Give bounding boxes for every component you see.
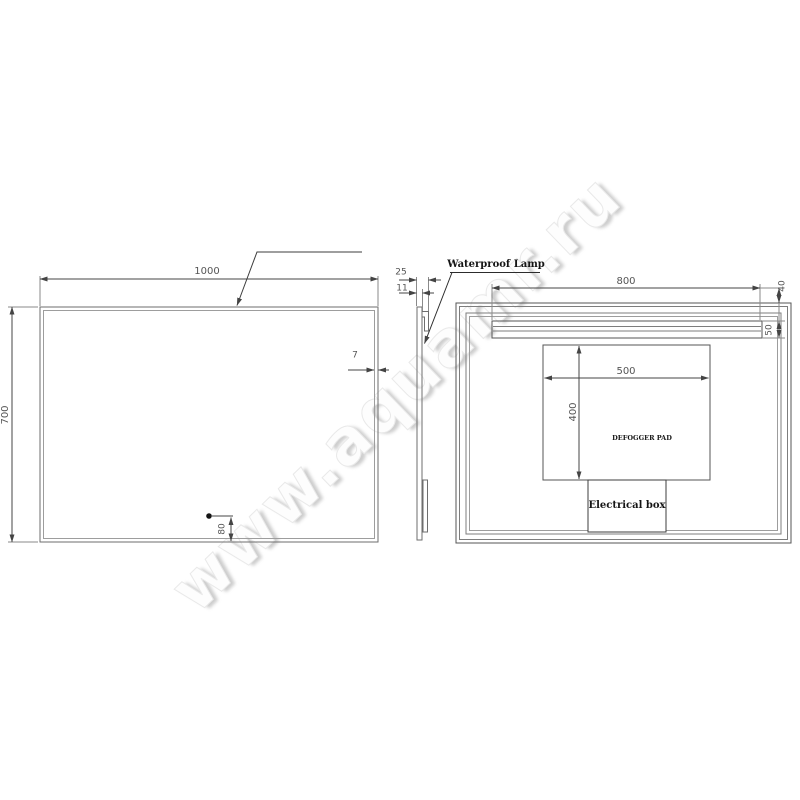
- sensor-dot: [206, 513, 212, 519]
- waterproof-lamp-leader: [425, 273, 541, 344]
- front-frame-label: 7: [352, 352, 358, 361]
- drawing-linework: [0, 0, 800, 800]
- dim-width-1000: [40, 276, 378, 306]
- dim-depth-25: [399, 277, 441, 311]
- dim-lamp-800: [492, 284, 760, 320]
- front-width-label: 1000: [194, 267, 219, 277]
- dim-height-700: [8, 307, 38, 542]
- electrical-box-label: Electrical box: [588, 501, 665, 511]
- front-view: [8, 252, 389, 542]
- side-panel: [417, 307, 422, 540]
- front-outer-frame: [40, 307, 378, 542]
- defogger-pad-label: DEFOGGER PAD: [612, 435, 672, 442]
- pad-height-label: 400: [569, 402, 579, 421]
- back-lamp-top-gap-label: 40: [779, 280, 788, 291]
- lamp-strip: [492, 321, 762, 338]
- side-panel-thickness-label: 11: [396, 285, 407, 294]
- side-depth-label: 25: [395, 268, 406, 277]
- back-lamp-height-label: 50: [766, 324, 775, 335]
- pad-width-label: 500: [616, 367, 635, 377]
- side-top-bracket: [422, 312, 429, 332]
- side-electrical-box: [423, 480, 428, 532]
- waterproof-lamp-label: Waterproof Lamp: [447, 260, 545, 270]
- front-height-label: 700: [1, 405, 11, 424]
- front-inner-frame: [44, 311, 375, 539]
- back-lamp-length-label: 800: [616, 277, 635, 287]
- front-sensor-offset-label: 80: [219, 523, 228, 534]
- technical-drawing-canvas: www.aquamr.ru: [0, 0, 800, 800]
